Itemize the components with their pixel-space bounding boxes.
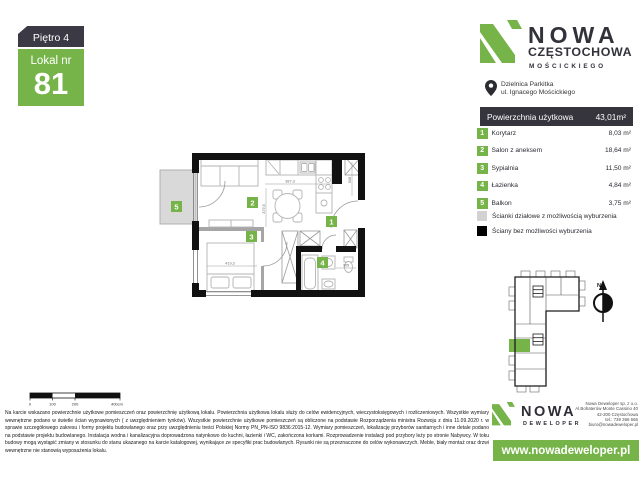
floor-badge: Piętro 4 (18, 26, 84, 47)
scale-bar-labels: 0 100 200 400cm (29, 402, 124, 407)
room-number-badge: 1 (477, 128, 488, 139)
room-number-badge: 5 (477, 198, 488, 209)
brand-name-line2: CZĘSTOCHOWA (528, 45, 632, 59)
room-marker-2: 2 (250, 199, 254, 208)
room-area-value: 18,64 m² (605, 147, 633, 154)
room-label: Korytarz (488, 130, 609, 137)
room-marker-3: 3 (249, 233, 253, 242)
footer-address: Nowa Deweloper sp. z o.o. Al.Bohaterów M… (560, 401, 638, 427)
svg-text:387,3: 387,3 (285, 180, 295, 184)
brand-name-line3: MOŚCICKIEGO (529, 63, 606, 70)
keyplan-stair-cores (533, 286, 543, 345)
area-table-header-value: 43,01m² (596, 112, 626, 122)
room-number-badge: 4 (477, 181, 488, 192)
room-number-badge: 2 (477, 146, 488, 157)
website-url[interactable]: www.nowadeweloper.pl (502, 445, 631, 457)
svg-text:508: 508 (348, 177, 352, 183)
footer-logo-icon (492, 402, 516, 427)
table-row: 2 Salon z aneksem 18,64 m² (477, 146, 633, 157)
partition-wall-swatch (477, 211, 487, 221)
scale-bar: 0 100 200 400cm (25, 388, 135, 408)
svg-text:400cm: 400cm (111, 402, 124, 407)
flyer-page: Piętro 4 Lokal nr 81 NOWA CZĘSTOCHOWA MO… (0, 0, 640, 480)
area-table: 1 Korytarz 8,03 m² 2 Salon z aneksem 18,… (477, 128, 633, 216)
location-pin-icon (485, 80, 497, 97)
wall-legend: Ścianki działowe z możliwością wyburzeni… (477, 211, 637, 241)
solid-wall-label: Ściany bez możliwości wyburzenia (487, 228, 592, 235)
n-mark-icon (480, 20, 522, 63)
room-area-value: 11,50 m² (605, 165, 633, 172)
room-label: Łazienka (488, 182, 609, 189)
website-link[interactable]: www.nowadeweloper.pl (493, 440, 639, 461)
address-email: biuro@nowadeweloper.pl (560, 422, 638, 427)
legend-row-partition: Ścianki działowe z możliwością wyburzeni… (477, 211, 637, 221)
floorplan-drawing: 387,3 379,5 419,3 508 305 1 2 3 4 5 (155, 128, 380, 308)
location-line2: ul. Ignacego Mościckiego (501, 89, 575, 96)
north-arrow-icon: N (594, 280, 612, 322)
north-label: N (597, 283, 601, 289)
room-label: Salon z aneksem (488, 147, 605, 154)
svg-text:419,3: 419,3 (225, 262, 235, 266)
keyplan-balconies (509, 271, 585, 392)
svg-text:379,5: 379,5 (262, 204, 266, 214)
keyplan-unit-highlight (509, 339, 530, 352)
area-table-header-label: Powierzchnia użytkowa (487, 112, 573, 122)
partition-wall-label: Ścianki działowe z możliwością wyburzeni… (487, 213, 617, 220)
table-row: 4 Łazienka 4,84 m² (477, 181, 633, 192)
keyplan-outline (515, 277, 579, 386)
floor-badge-label: Piętro 4 (33, 32, 69, 44)
room-area-value: 4,84 m² (609, 182, 633, 189)
room-label: Sypialnia (488, 165, 606, 172)
solid-wall-swatch (477, 226, 487, 236)
room-area-value: 3,75 m² (609, 200, 633, 207)
table-row: 3 Sypialnia 11,50 m² (477, 163, 633, 174)
location-line1: Dzielnica Parkitka (501, 81, 553, 88)
unit-number-box: Lokal nr 81 (18, 49, 84, 106)
footer-disclaimer: Na karcie wskazano powierzchnie użytkowe… (5, 410, 489, 455)
keyplan-partitions (515, 277, 579, 369)
svg-text:100: 100 (49, 402, 56, 407)
table-row: 1 Korytarz 8,03 m² (477, 128, 633, 139)
svg-text:305: 305 (343, 264, 349, 268)
room-label: Balkon (488, 200, 609, 207)
room-marker-1: 1 (329, 218, 333, 227)
svg-text:200: 200 (72, 402, 79, 407)
brand-logo-icon (480, 20, 524, 66)
room-number-badge: 3 (477, 163, 488, 174)
balcony (160, 170, 196, 224)
table-row: 5 Balkon 3,75 m² (477, 198, 633, 209)
svg-text:0: 0 (29, 402, 32, 407)
legend-row-solid: Ściany bez możliwości wyburzenia (477, 226, 637, 236)
unit-number: 81 (18, 68, 84, 100)
room-area-value: 8,03 m² (609, 130, 633, 137)
area-table-header: Powierzchnia użytkowa 43,01m² (480, 107, 633, 126)
building-keyplan: N (493, 266, 640, 402)
room-marker-5: 5 (174, 203, 178, 212)
